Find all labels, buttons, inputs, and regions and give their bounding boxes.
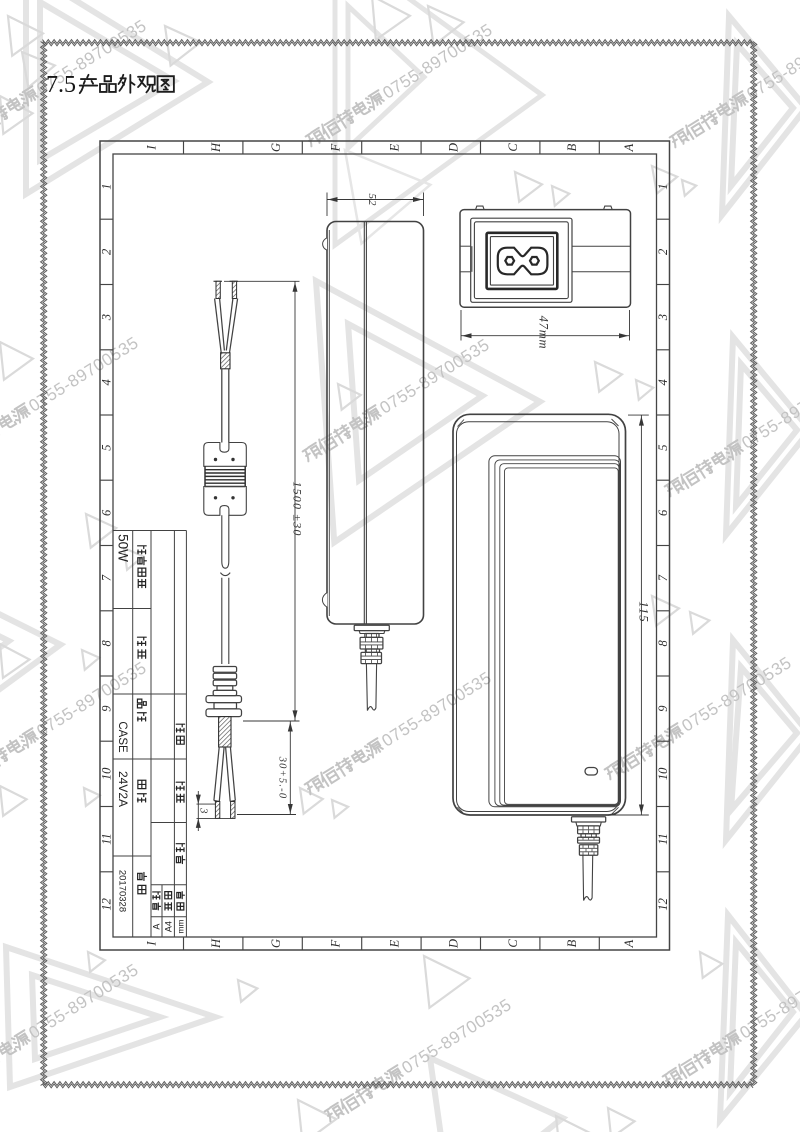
svg-text:3: 3 — [198, 807, 210, 815]
svg-text:4: 4 — [656, 379, 670, 385]
svg-text:3: 3 — [100, 314, 114, 321]
svg-text:A: A — [622, 939, 636, 948]
svg-text:20170328: 20170328 — [117, 870, 128, 912]
svg-text:7.5: 7.5 — [46, 72, 76, 98]
svg-text:10: 10 — [656, 767, 670, 780]
svg-text:12: 12 — [100, 898, 114, 911]
svg-text:4: 4 — [100, 379, 114, 385]
svg-text:5: 5 — [100, 444, 114, 450]
svg-text:9: 9 — [100, 705, 114, 712]
svg-text:A4: A4 — [163, 921, 173, 932]
svg-text:I: I — [145, 941, 159, 947]
svg-text:9: 9 — [656, 705, 670, 712]
svg-text:10: 10 — [100, 767, 114, 780]
svg-text:E: E — [388, 939, 402, 948]
svg-text:7: 7 — [656, 574, 670, 581]
svg-text:2: 2 — [100, 249, 114, 255]
svg-text:1500 ±30: 1500 ±30 — [291, 481, 305, 536]
svg-text:F: F — [329, 939, 343, 948]
svg-text:G: G — [269, 143, 283, 152]
svg-text:5: 5 — [656, 444, 670, 450]
svg-text:8: 8 — [100, 640, 114, 647]
svg-text:D: D — [447, 939, 461, 949]
svg-text:A: A — [152, 924, 162, 930]
svg-text:H: H — [209, 142, 223, 153]
svg-text:D: D — [447, 143, 461, 153]
svg-text:50W: 50W — [115, 534, 130, 562]
svg-text:115: 115 — [637, 601, 652, 623]
svg-text:0755-89700535: 0755-89700535 — [379, 20, 496, 103]
svg-text:F: F — [329, 143, 343, 152]
svg-text:0755-89700535: 0755-89700535 — [378, 668, 495, 751]
svg-text:7: 7 — [100, 574, 114, 581]
svg-text:8: 8 — [656, 640, 670, 647]
svg-text:H: H — [209, 938, 223, 949]
svg-text:B: B — [565, 143, 579, 151]
svg-text:CASE: CASE — [116, 721, 128, 753]
svg-text:52: 52 — [366, 194, 378, 207]
svg-text:1: 1 — [656, 183, 670, 189]
svg-text:24V2A: 24V2A — [116, 771, 130, 807]
svg-text:2: 2 — [656, 249, 670, 255]
svg-text:E: E — [388, 143, 402, 152]
svg-text:mm: mm — [175, 920, 185, 934]
svg-text:30+5.-0: 30+5.-0 — [276, 756, 287, 800]
svg-text:B: B — [565, 939, 579, 947]
svg-text:C: C — [506, 143, 520, 152]
svg-text:C: C — [506, 939, 520, 948]
svg-text:6: 6 — [656, 509, 670, 516]
svg-text:A: A — [622, 143, 636, 152]
svg-text:3: 3 — [656, 314, 670, 321]
svg-text:1: 1 — [100, 183, 114, 189]
svg-text:I: I — [145, 145, 159, 151]
svg-text:6: 6 — [100, 509, 114, 516]
svg-text:47mm: 47mm — [537, 316, 551, 350]
svg-text:0755-89700535: 0755-89700535 — [398, 995, 515, 1078]
svg-text:11: 11 — [656, 833, 670, 845]
svg-text:G: G — [269, 939, 283, 948]
svg-text:12: 12 — [656, 898, 670, 911]
svg-text:11: 11 — [100, 833, 114, 845]
